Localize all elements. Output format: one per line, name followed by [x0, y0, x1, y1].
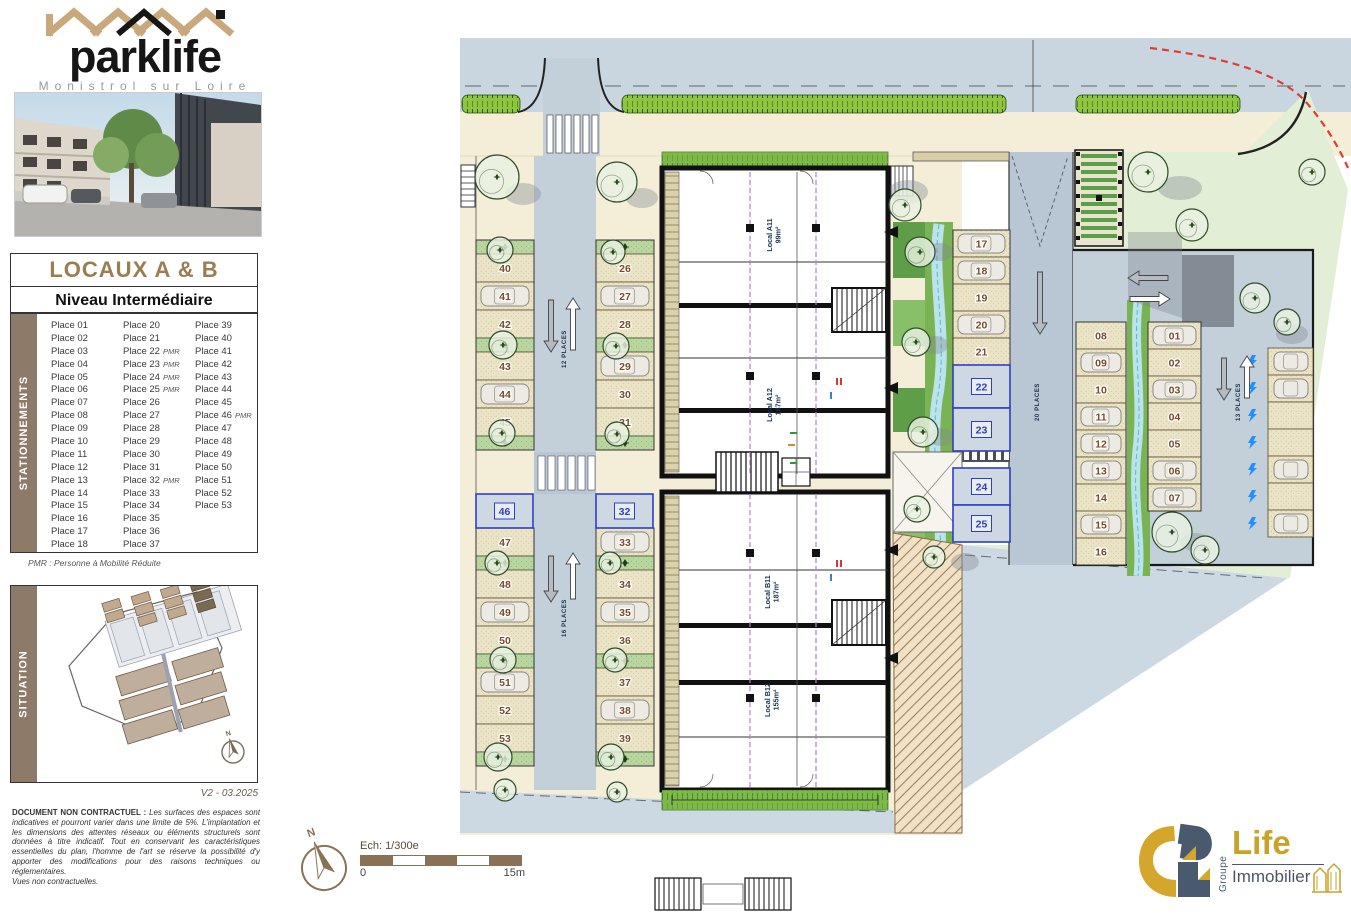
ev-parking-stall [1268, 483, 1313, 510]
place-item: Place 07 [51, 397, 123, 410]
place-item: Place 53 [195, 500, 267, 513]
place-item: Place 04 [51, 359, 123, 372]
svg-text:N: N [306, 826, 318, 840]
pmr-number-22: 22 [976, 382, 988, 394]
stall-number-19: 19 [976, 293, 988, 305]
stall-number-51: 51 [499, 677, 511, 689]
place-item: Place 06 [51, 384, 123, 397]
site-plan: Local A1199m² Local A12187m² Local B1118… [460, 30, 1351, 915]
place-item: Place 14 [51, 488, 123, 501]
place-item: Place 43 [195, 372, 267, 385]
situation-map: N [37, 586, 257, 782]
ev-parking-stall [1268, 429, 1313, 456]
lane-label-12: 12 PLACES [562, 330, 568, 368]
center-lane [1009, 152, 1073, 565]
stall-number-12: 12 [1095, 439, 1107, 451]
locals-title: LOCAUX A & B [11, 254, 257, 287]
stall-number-39: 39 [619, 733, 631, 745]
stall-number-48: 48 [499, 579, 511, 591]
stall-number-07: 07 [1169, 493, 1181, 505]
pmr-tag: PMR [163, 347, 180, 356]
disclaimer: DOCUMENT NON CONTRACTUEL : Les surfaces … [12, 808, 260, 886]
stall-number-09: 09 [1095, 358, 1107, 370]
place-item: Place 02 [51, 333, 123, 346]
place-item: Place 05 [51, 372, 123, 385]
place-item: Place 33 [123, 488, 195, 501]
place-item: Place 17 [51, 526, 123, 539]
place-item: Place 39 [195, 320, 267, 333]
stall-number-20: 20 [976, 320, 988, 332]
car-glyph [1274, 514, 1308, 533]
stall-number-02: 02 [1169, 358, 1181, 370]
place-item: Place 08 [51, 410, 123, 423]
place-column-1: Place 01Place 02Place 03Place 04Place 05… [51, 320, 123, 552]
stall-number-08: 08 [1095, 331, 1107, 343]
car-glyph [1274, 379, 1308, 398]
stall-number-27: 27 [619, 291, 631, 303]
stall-number-35: 35 [619, 607, 631, 619]
place-item: Place 13 [51, 475, 123, 488]
pmr-number-24: 24 [976, 482, 988, 494]
brand-logo: parklife Monistrol sur Loire [30, 4, 260, 84]
place-item: Place 26 [123, 397, 195, 410]
stall-number-21: 21 [976, 347, 988, 359]
stall-number-26: 26 [619, 263, 631, 275]
pmr-tag: PMR [163, 476, 180, 485]
place-item: Place 16 [51, 513, 123, 526]
place-item: Place 03 [51, 346, 123, 359]
place-item: Place 21 [123, 333, 195, 346]
scale-start: 0 [360, 867, 366, 879]
place-item: Place 20 [123, 320, 195, 333]
stall-number-52: 52 [499, 705, 511, 717]
place-item: Place 32PMR [123, 475, 195, 488]
place-item: Place 18 [51, 539, 123, 552]
brand-name: parklife [30, 37, 260, 77]
place-item: Place 12 [51, 462, 123, 475]
pmr-number-25: 25 [976, 519, 988, 531]
disclaimer-heading: DOCUMENT NON CONTRACTUEL : [12, 808, 146, 817]
car-glyph [1274, 352, 1308, 371]
stair-ladder-west [461, 165, 475, 207]
place-item: Place 31 [123, 462, 195, 475]
crosswalk-west-lane [534, 452, 596, 494]
place-item: Place 47 [195, 423, 267, 436]
stall-number-44: 44 [499, 389, 511, 401]
situation-compass-icon: N [217, 728, 246, 765]
building-a [662, 152, 888, 476]
stall-number-01: 01 [1169, 331, 1181, 343]
level-subtitle: Niveau Intermédiaire [11, 287, 257, 314]
stall-number-37: 37 [619, 677, 631, 689]
lane-label-16: 16 PLACES [562, 599, 568, 637]
pmr-tag: PMR [163, 373, 180, 382]
lane-label-13: 13 PLACES [1236, 383, 1242, 421]
place-columns: Place 01Place 02Place 03Place 04Place 05… [37, 314, 267, 552]
brand-subtitle: Monistrol sur Loire [30, 79, 260, 93]
pergola-grid [1075, 150, 1123, 246]
place-item: Place 45 [195, 397, 267, 410]
stall-number-38: 38 [619, 705, 631, 717]
place-item: Place 34 [123, 500, 195, 513]
place-item: Place 11 [51, 449, 123, 462]
place-item: Place 15 [51, 500, 123, 513]
disclaimer-footer: Vues non contractuelles. [12, 877, 260, 887]
building-b [662, 492, 888, 810]
pmr-number-46: 46 [499, 506, 511, 518]
place-item: Place 27 [123, 410, 195, 423]
pmr-note: PMR : Personne à Mobilité Réduite [28, 558, 161, 568]
situation-block: SITUATION [10, 585, 258, 783]
stall-number-11: 11 [1095, 412, 1106, 424]
place-item: Place 10 [51, 436, 123, 449]
stall-number-06: 06 [1169, 466, 1181, 478]
stall-number-03: 03 [1169, 385, 1181, 397]
pmr-number-23: 23 [976, 425, 988, 437]
stall-number-40: 40 [499, 263, 511, 275]
stationnements-label: STATIONNEMENTS [18, 376, 30, 490]
stall-number-43: 43 [499, 361, 511, 373]
stall-number-36: 36 [619, 635, 631, 647]
lane-label-20: 20 PLACES [1035, 383, 1041, 421]
stall-number-28: 28 [619, 319, 631, 331]
stall-number-13: 13 [1095, 466, 1107, 478]
place-item: Place 23PMR [123, 359, 195, 372]
stationnements-sidebar: STATIONNEMENTS [11, 314, 37, 552]
stairs-b [832, 600, 886, 645]
stall-number-34: 34 [619, 579, 631, 591]
place-item: Place 48 [195, 436, 267, 449]
place-item: Place 29 [123, 436, 195, 449]
stall-number-04: 04 [1169, 412, 1181, 424]
stall-number-17: 17 [976, 239, 988, 251]
place-item: Place 44 [195, 384, 267, 397]
place-item: Place 40 [195, 333, 267, 346]
stall-number-30: 30 [619, 389, 631, 401]
stall-number-50: 50 [499, 635, 511, 647]
place-item: Place 36 [123, 526, 195, 539]
place-item: Place 51 [195, 475, 267, 488]
place-column-3: Place 39Place 40Place 41Place 42Place 43… [195, 320, 267, 552]
stall-number-10: 10 [1095, 385, 1107, 397]
pmr-tag: PMR [235, 411, 252, 420]
page: parklife Monistrol sur Loire [0, 0, 1351, 915]
ev-parking-stall [1268, 402, 1313, 429]
situation-label: SITUATION [18, 650, 30, 717]
stall-number-14: 14 [1095, 493, 1107, 505]
place-item: Place 09 [51, 423, 123, 436]
place-item: Place 50 [195, 462, 267, 475]
pmr-tag: PMR [163, 385, 180, 394]
stall-number-41: 41 [499, 291, 511, 303]
parking-list-block: STATIONNEMENTS Place 01Place 02Place 03P… [10, 313, 258, 553]
place-item: Place 41 [195, 346, 267, 359]
stall-number-29: 29 [619, 361, 631, 373]
pmr-tag: PMR [163, 360, 180, 369]
building-shadow [1182, 255, 1234, 327]
stall-number-16: 16 [1095, 547, 1107, 559]
stall-number-49: 49 [499, 607, 511, 619]
south-shelters [655, 878, 791, 910]
stairs-a [832, 288, 886, 332]
stall-number-05: 05 [1169, 439, 1181, 451]
place-item: Place 25PMR [123, 384, 195, 397]
car-glyph [1274, 460, 1308, 479]
disclaimer-body: Les surfaces des espaces sont indicative… [12, 808, 260, 876]
place-item: Place 52 [195, 488, 267, 501]
place-item: Place 46PMR [195, 410, 267, 423]
hatched-zone [893, 533, 962, 833]
pmr-number-32: 32 [619, 506, 631, 518]
north-compass-icon: N [286, 816, 364, 908]
central-vestibule [716, 452, 810, 492]
place-item: Place 24PMR [123, 372, 195, 385]
stall-number-47: 47 [499, 537, 511, 549]
version-label: V2 - 03.2025 [150, 788, 258, 799]
stall-number-42: 42 [499, 319, 511, 331]
place-item: Place 30 [123, 449, 195, 462]
place-item: Place 22PMR [123, 346, 195, 359]
stall-number-33: 33 [619, 537, 631, 549]
project-photo [14, 92, 262, 237]
place-column-2: Place 20Place 21Place 22PMRPlace 23PMRPl… [123, 320, 195, 552]
place-item: Place 28 [123, 423, 195, 436]
place-item: Place 37 [123, 539, 195, 552]
stall-number-15: 15 [1095, 520, 1107, 532]
situation-sidebar: SITUATION [11, 586, 37, 782]
place-item: Place 01 [51, 320, 123, 333]
place-item: Place 49 [195, 449, 267, 462]
stall-number-18: 18 [976, 266, 988, 278]
place-item: Place 42 [195, 359, 267, 372]
svg-text:N: N [225, 730, 232, 738]
title-block: LOCAUX A & B Niveau Intermédiaire [10, 253, 258, 313]
place-item: Place 35 [123, 513, 195, 526]
